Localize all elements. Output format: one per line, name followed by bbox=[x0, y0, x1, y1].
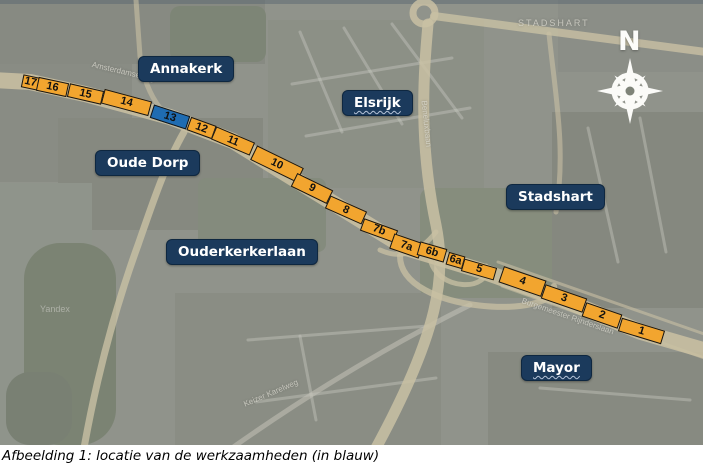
place-label-ouderkerkerlaan: Ouderkerkerlaan bbox=[166, 239, 318, 265]
place-label-elsrijk: Elsrijk bbox=[342, 90, 413, 116]
figure-caption: Afbeelding 1: locatie van de werkzaamhed… bbox=[2, 448, 379, 464]
compass-rose-icon bbox=[593, 54, 667, 128]
place-label-mayor: Mayor bbox=[521, 355, 592, 381]
yandex-watermark: Yandex bbox=[40, 304, 70, 314]
compass-north-letter: N bbox=[618, 26, 641, 57]
place-label-oude-dorp: Oude Dorp bbox=[95, 150, 200, 176]
caption-bar: Afbeelding 1: locatie van de werkzaamhed… bbox=[0, 445, 703, 470]
map-container: AmsterdamsewegBeneluxbaanSTADSHARTBurgem… bbox=[0, 0, 703, 445]
street-name: STADSHART bbox=[518, 18, 590, 28]
place-label-text: Oude Dorp bbox=[107, 155, 188, 171]
place-label-text: Elsrijk bbox=[354, 95, 401, 111]
place-label-text: Ouderkerkerlaan bbox=[178, 244, 306, 260]
place-label-text: Mayor bbox=[533, 360, 580, 376]
place-label-text: Stadshart bbox=[518, 189, 593, 205]
place-label-annakerk: Annakerk bbox=[138, 56, 234, 82]
place-label-stadshart: Stadshart bbox=[506, 184, 605, 210]
place-label-text: Annakerk bbox=[150, 61, 222, 77]
figure-werkzaamheden: AmsterdamsewegBeneluxbaanSTADSHARTBurgem… bbox=[0, 0, 703, 470]
